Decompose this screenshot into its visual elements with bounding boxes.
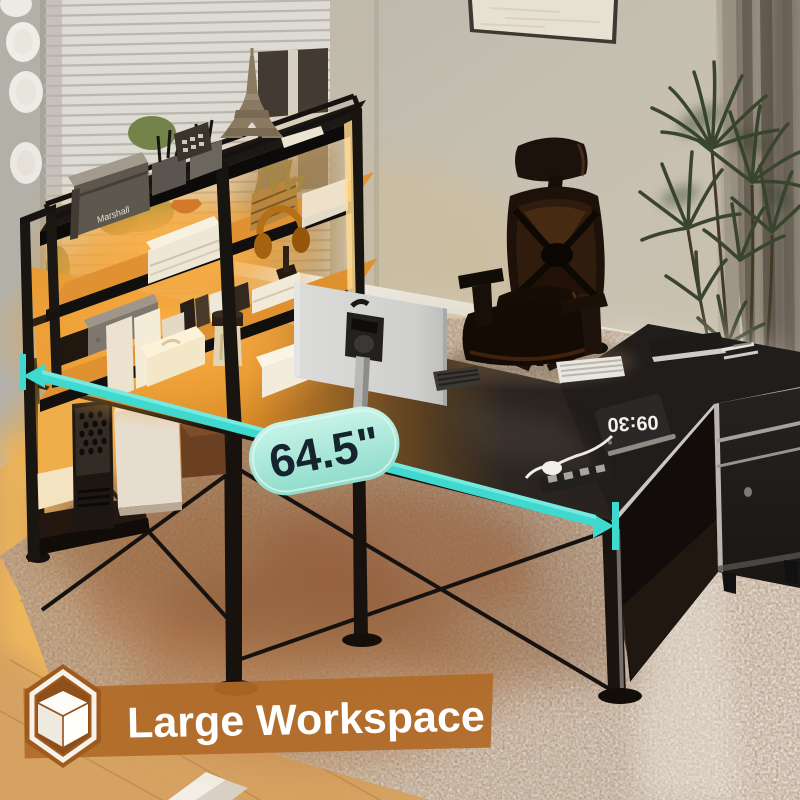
svg-text:Large Workspace: Large Workspace: [127, 693, 486, 748]
svg-text:09:30: 09:30: [607, 411, 659, 436]
